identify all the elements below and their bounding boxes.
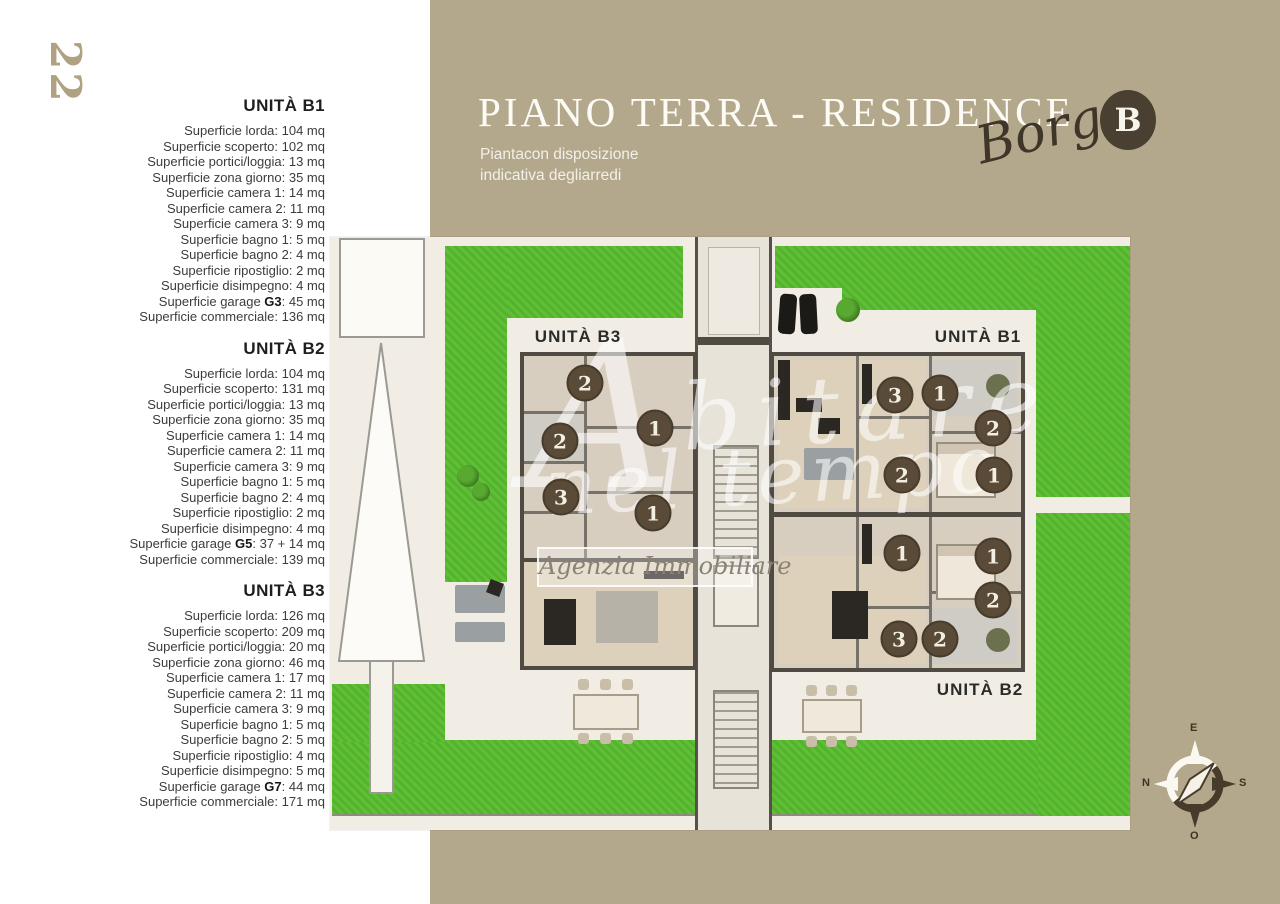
watermark-caption: Agenzia Immobiliare <box>537 547 753 587</box>
spec-line: Superficie camera 1: 14 mq <box>55 185 325 201</box>
spec-line: Superficie camera 3: 9 mq <box>55 216 325 232</box>
wardrobe <box>862 524 872 564</box>
shrub <box>836 298 860 322</box>
page-subtitle: Piantacon disposizione indicativa deglia… <box>480 144 639 186</box>
garden-left-strip <box>445 246 507 582</box>
spec-line: Superficie zona giorno: 35 mq <box>55 170 325 186</box>
spec-line: Superficie bagno 2: 4 mq <box>55 247 325 263</box>
spec-line: Superficie disimpegno: 4 mq <box>55 521 325 537</box>
stairs <box>713 690 759 789</box>
unit-spec-heading: UNITÀ B3 <box>55 581 325 601</box>
page-number: 22 <box>30 40 90 100</box>
spec-line: Superficie lorda: 104 mq <box>55 123 325 139</box>
spec-line: Superficie portici/loggia: 20 mq <box>55 639 325 655</box>
spec-line: Superficie commerciale: 171 mq <box>55 794 325 810</box>
entrance-walkway <box>708 247 760 335</box>
spec-line: Superficie bagno 1: 5 mq <box>55 232 325 248</box>
spec-line: Superficie scoperto: 102 mq <box>55 139 325 155</box>
spec-line: Superficie lorda: 104 mq <box>55 366 325 382</box>
unit-spec-block: UNITÀ B1Superficie lorda: 104 mqSuperfic… <box>55 96 325 325</box>
compass-east-label: E <box>1190 722 1197 734</box>
spec-line: Superficie camera 2: 11 mq <box>55 443 325 459</box>
dining-table <box>832 591 868 639</box>
spec-line: Superficie disimpegno: 5 mq <box>55 763 325 779</box>
entrance-lintel <box>698 337 769 345</box>
spec-line: Superficie camera 3: 9 mq <box>55 701 325 717</box>
spec-line: Superficie ripostiglio: 4 mq <box>55 748 325 764</box>
spec-line: Superficie camera 3: 9 mq <box>55 459 325 475</box>
car-icon <box>799 294 818 335</box>
compass-icon <box>1140 722 1250 842</box>
unit-spec-heading: UNITÀ B1 <box>55 96 325 116</box>
car-icon <box>778 293 798 334</box>
compass-south-label: S <box>1239 777 1246 789</box>
spec-line: Superficie commerciale: 136 mq <box>55 309 325 325</box>
spec-line: Superficie garage G5: 37 + 14 mq <box>55 536 325 552</box>
shrub <box>472 483 490 501</box>
spec-line: Superficie bagno 2: 4 mq <box>55 490 325 506</box>
bed <box>936 544 996 600</box>
unit-spec-list: UNITÀ B1Superficie lorda: 104 mqSuperfic… <box>55 96 325 810</box>
spec-line: Superficie bagno 2: 5 mq <box>55 732 325 748</box>
spec-line: Superficie camera 2: 11 mq <box>55 686 325 702</box>
rug <box>596 591 658 643</box>
page-subtitle-line1: Piantacon disposizione <box>480 144 639 165</box>
tree-outline <box>333 237 433 797</box>
spec-line: Superficie disimpegno: 4 mq <box>55 278 325 294</box>
garden-bottom <box>332 740 1038 816</box>
unit-spec-block: UNITÀ B2Superficie lorda: 104 mqSuperfic… <box>55 339 325 568</box>
garden-right-strip <box>1036 246 1130 816</box>
patio-table <box>802 699 862 733</box>
spec-line: Superficie garage G3: 45 mq <box>55 294 325 310</box>
compass-west-label: O <box>1190 830 1199 842</box>
brand-badge: B <box>1100 90 1156 150</box>
patio-chairs <box>578 679 589 690</box>
dining-table <box>544 599 576 645</box>
spec-line: Superficie camera 2: 11 mq <box>55 201 325 217</box>
spec-line: Superficie portici/loggia: 13 mq <box>55 397 325 413</box>
spec-line: Superficie zona giorno: 46 mq <box>55 655 325 671</box>
floor-plan: A bitare nel tempo Agenzia Immobiliare <box>330 237 1130 830</box>
compass-north-label: N <box>1142 777 1150 789</box>
garden-sofa <box>455 622 505 642</box>
unit-spec-block: UNITÀ B3Superficie lorda: 126 mqSuperfic… <box>55 581 325 810</box>
spec-line: Superficie garage G7: 44 mq <box>55 779 325 795</box>
unit-spec-heading: UNITÀ B2 <box>55 339 325 359</box>
patio-chairs <box>806 685 817 696</box>
spec-line: Superficie bagno 1: 5 mq <box>55 717 325 733</box>
compass-rose: E S O N <box>1140 722 1250 842</box>
spec-line: Superficie camera 1: 14 mq <box>55 428 325 444</box>
spec-line: Superficie commerciale: 139 mq <box>55 552 325 568</box>
page-subtitle-line2: indicativa degliarredi <box>480 165 639 186</box>
brochure-page: 22 UNITÀ B1Superficie lorda: 104 mqSuper… <box>0 0 1280 904</box>
spec-line: Superficie bagno 1: 5 mq <box>55 474 325 490</box>
spec-line: Superficie ripostiglio: 2 mq <box>55 505 325 521</box>
spec-line: Superficie ripostiglio: 2 mq <box>55 263 325 279</box>
stairwell-corridor <box>695 237 772 830</box>
spec-line: Superficie portici/loggia: 13 mq <box>55 154 325 170</box>
spec-line: Superficie scoperto: 131 mq <box>55 381 325 397</box>
spec-line: Superficie zona giorno: 35 mq <box>55 412 325 428</box>
patio-table <box>573 694 639 730</box>
spec-line: Superficie lorda: 126 mq <box>55 608 325 624</box>
spec-line: Superficie scoperto: 209 mq <box>55 624 325 640</box>
armchair <box>986 628 1010 652</box>
spec-line: Superficie camera 1: 17 mq <box>55 670 325 686</box>
garden-path <box>1036 497 1130 513</box>
